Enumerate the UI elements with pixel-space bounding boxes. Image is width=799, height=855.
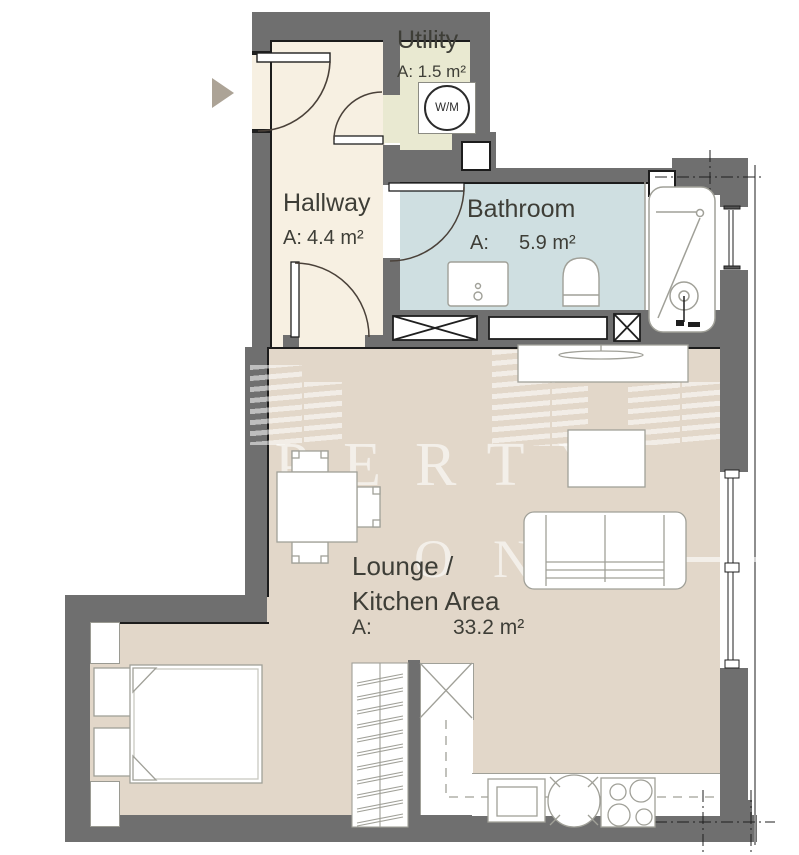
bathroom-area-value: 5.9 m² (519, 232, 576, 255)
entrance-arrow-icon (212, 78, 234, 108)
slatted-unit (352, 663, 408, 827)
kitchen-fittings (420, 663, 718, 827)
lounge-label-line1: Lounge / (352, 549, 499, 584)
bathroom-sink (448, 262, 508, 306)
floor-plan: PROPERTY ONE (0, 0, 799, 855)
tv-unit (518, 345, 688, 382)
window-glazing (724, 206, 740, 668)
bathroom-label: Bathroom (467, 195, 575, 224)
hallway-area-label: A: (283, 227, 302, 250)
sofa (524, 512, 686, 589)
bathroom-door (383, 183, 464, 261)
toilet (563, 258, 599, 306)
hallway-label: Hallway (283, 189, 371, 218)
washing-machine-label: W/M (435, 102, 459, 114)
lounge-door (291, 262, 369, 347)
entrance-door (252, 51, 330, 133)
utility-door (334, 92, 400, 144)
utility-area-label: A: (397, 62, 413, 81)
washing-machine: W/M (418, 82, 476, 134)
plan-linework (0, 0, 799, 855)
bathroom-area-label: A: (470, 232, 489, 255)
utility-area: A: 1.5 m² (397, 62, 466, 82)
shower (645, 182, 715, 332)
lounge-label-line2: Kitchen Area (352, 584, 499, 619)
storage-units (393, 314, 640, 341)
utility-area-value: 1.5 m² (418, 62, 466, 81)
bed (94, 665, 262, 783)
dining-table (277, 451, 380, 563)
utility-label: Utility (397, 26, 458, 55)
hallway-area-value: 4.4 m² (307, 227, 364, 250)
lounge-area-value: 33.2 m² (453, 616, 524, 640)
coffee-table (568, 430, 645, 487)
lounge-kitchen-label: Lounge / Kitchen Area (352, 549, 499, 619)
lounge-area-label: A: (352, 616, 372, 640)
washing-machine-icon: W/M (424, 85, 470, 131)
